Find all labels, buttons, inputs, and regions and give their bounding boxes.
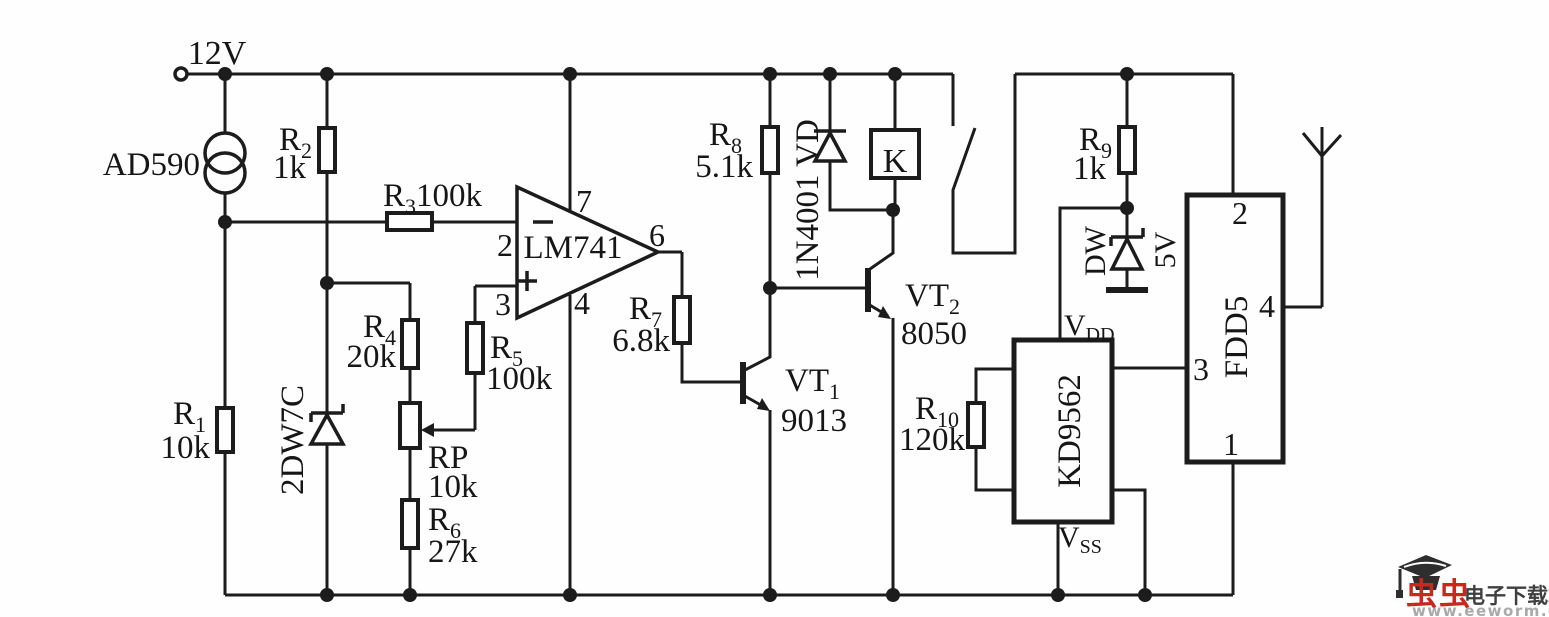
- junction-dot: [1138, 588, 1152, 602]
- rp-value: 10k: [428, 469, 478, 505]
- resistor-r4: R4 20k: [347, 309, 419, 375]
- transistor-vt1: VT1 9013: [743, 362, 847, 439]
- wiper-arrow-icon: [421, 423, 434, 437]
- vdd-label: VDD: [1064, 309, 1115, 346]
- junction-dot: [218, 215, 232, 229]
- resistor-r8: R8 5.1k: [695, 117, 778, 185]
- schematic-svg: 12V AD590 R1 10k R2 1k R3100k R4 20k R5 …: [0, 0, 1549, 617]
- vt1-model: 9013: [781, 403, 847, 439]
- resistor-body: [319, 128, 335, 172]
- zener-diode-2dw7c: 2DW7C: [275, 385, 343, 495]
- vt1-ref: VT1: [785, 363, 840, 404]
- junction-dot: [763, 67, 777, 81]
- junction-dot: [1120, 67, 1134, 81]
- diode-triangle-icon: [311, 415, 343, 444]
- resistor-body: [402, 500, 418, 548]
- kd9562-label: KD9562: [1052, 374, 1088, 488]
- r1-value: 10k: [161, 430, 211, 466]
- resistor-body: [467, 323, 483, 373]
- supply-voltage-label: 12V: [188, 35, 247, 72]
- r4-value: 20k: [347, 339, 397, 375]
- vt2-net-wire: [868, 210, 893, 595]
- relay-k: K: [871, 130, 919, 180]
- opamp-pin6-label: 6: [649, 217, 665, 253]
- resistor-body: [762, 127, 778, 173]
- circuit-diagram: 12V AD590 R1 10k R2 1k R3100k R4 20k R5 …: [0, 0, 1549, 617]
- opamp-pin7-label: 7: [576, 183, 592, 219]
- junction-dot: [320, 67, 334, 81]
- dw-value: 5V: [1149, 231, 1182, 268]
- diode-triangle-icon: [1112, 239, 1142, 269]
- vss-label: VSS: [1058, 521, 1102, 558]
- junction-dot: [403, 588, 417, 602]
- junction-dot: [763, 588, 777, 602]
- potentiometer-rp: RP 10k: [400, 403, 478, 505]
- relay-label: K: [883, 143, 908, 180]
- fdd5-pin1-label: 1: [1223, 426, 1239, 462]
- wire-network: [187, 74, 1322, 595]
- r9-dw-vdd-wire: [1060, 74, 1127, 340]
- antenna-lines: [1303, 127, 1341, 307]
- r9-value: 1k: [1073, 151, 1107, 187]
- r2-value: 1k: [273, 150, 307, 186]
- cap-tassel-end: [1396, 590, 1403, 598]
- potentiometer-body: [400, 403, 420, 448]
- r10-value: 120k: [899, 422, 966, 458]
- junction-dot: [563, 588, 577, 602]
- junction-dot: [886, 203, 900, 217]
- opamp-pin3-label: 3: [495, 286, 511, 322]
- fdd5-pin2-label: 2: [1232, 195, 1248, 231]
- r5-value: 100k: [486, 361, 553, 397]
- ic-fdd5: FDD5 2 4 3 1: [1187, 195, 1283, 462]
- resistor-body: [217, 408, 233, 452]
- junction-dot: [888, 67, 902, 81]
- junction-dot: [1120, 201, 1134, 215]
- vt1-net-wire: [682, 288, 770, 595]
- opamp-pin4-label: 4: [574, 285, 590, 321]
- fdd5-label: FDD5: [1219, 296, 1255, 379]
- switch-net-wire: [953, 74, 1015, 253]
- watermark: 虫虫 电子下载站 www.eeworm.com: [1396, 555, 1549, 617]
- resistor-body: [968, 403, 984, 447]
- resistor-r1: R1 10k: [161, 396, 234, 466]
- dw-label: DW: [1079, 225, 1112, 276]
- watermark-url: www.eeworm.com: [1412, 602, 1549, 617]
- resistor-r6: R6 27k: [402, 500, 478, 570]
- r3-label: R3100k: [383, 178, 483, 219]
- vt2-model: 8050: [901, 316, 967, 352]
- r7-value: 6.8k: [612, 323, 670, 359]
- r6-value: 27k: [428, 534, 478, 570]
- sensor-label: AD590: [103, 147, 200, 183]
- temperature-sensor-ad590: AD590: [103, 133, 245, 193]
- vt2-ref: VT2: [905, 278, 960, 319]
- opamp-pin2-label: 2: [497, 227, 513, 263]
- resistor-r5: R5 100k: [467, 323, 553, 397]
- junction-dot: [320, 276, 334, 290]
- resistor-body: [674, 297, 690, 343]
- junction-dot: [1051, 588, 1065, 602]
- fdd5-pin4-label: 4: [1259, 288, 1275, 324]
- junction-dot: [823, 67, 837, 81]
- diode-1n4001: 1N4001 VD: [790, 119, 846, 281]
- fdd5-pin3-label: 3: [1193, 351, 1209, 387]
- junction-dot: [886, 588, 900, 602]
- r8-value: 5.1k: [695, 149, 753, 185]
- transistor-vt2: VT2 8050: [868, 268, 967, 352]
- junction-dot: [763, 281, 777, 295]
- resistor-r10: R10 120k: [899, 391, 984, 458]
- ic-kd9562: KD9562 VDD VSS: [1014, 309, 1115, 558]
- resistor-body: [402, 320, 418, 368]
- resistor-body: [1119, 127, 1135, 173]
- junction-dot: [320, 588, 334, 602]
- opamp-label: LM741: [524, 230, 623, 266]
- junction-dot: [218, 67, 232, 81]
- resistor-r7: R7 6.8k: [612, 291, 690, 359]
- zener-label: 2DW7C: [275, 385, 311, 495]
- power-terminal-icon: [175, 68, 187, 80]
- junction-dot: [563, 67, 577, 81]
- vd-label: 1N4001 VD: [790, 119, 826, 281]
- noninverting-input-icon: [517, 271, 537, 291]
- antenna-icon: [1303, 127, 1341, 307]
- zener-diode-dw: DW 5V: [1079, 225, 1182, 290]
